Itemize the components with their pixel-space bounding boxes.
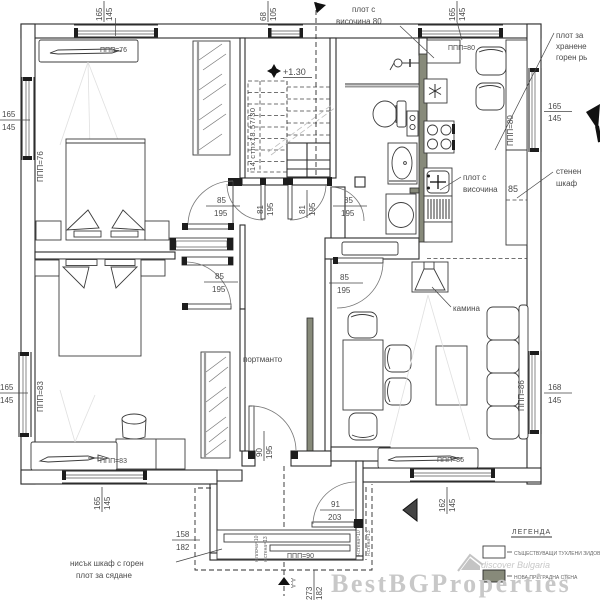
svg-text:ППП=83: ППП=83 xyxy=(36,381,45,412)
svg-text:н.стена=13: н.стена=13 xyxy=(263,536,269,562)
svg-text:145: 145 xyxy=(103,496,112,510)
svg-text:портманто: портманто xyxy=(243,355,283,364)
svg-text:горен рь: горен рь xyxy=(556,53,587,62)
svg-text:145: 145 xyxy=(548,114,562,123)
svg-text:ППП=90: ППП=90 xyxy=(287,553,314,560)
svg-text:ППП=86: ППП=86 xyxy=(437,457,464,464)
svg-text:®: ® xyxy=(563,573,569,582)
svg-text:височина 80: височина 80 xyxy=(336,17,382,26)
svg-text:ППП=86: ППП=86 xyxy=(517,380,526,411)
svg-text:195: 195 xyxy=(214,209,228,218)
svg-text:85: 85 xyxy=(215,272,224,281)
svg-text:145: 145 xyxy=(0,396,14,405)
svg-text:н.стена=13: н.стена=13 xyxy=(366,530,372,556)
svg-text:165: 165 xyxy=(548,102,562,111)
svg-text:85: 85 xyxy=(340,273,349,282)
svg-text:105: 105 xyxy=(269,7,278,21)
svg-text:182: 182 xyxy=(176,543,190,552)
svg-text:нисък шкаф с горен: нисък шкаф с горен xyxy=(70,559,144,568)
svg-text:ППП=76: ППП=76 xyxy=(100,47,127,54)
svg-text:плот за: плот за xyxy=(556,31,584,40)
svg-text:145: 145 xyxy=(105,7,114,21)
svg-text:A-A: A-A xyxy=(289,578,295,588)
svg-text:168: 168 xyxy=(548,383,562,392)
svg-text:височина: височина xyxy=(463,185,498,194)
svg-text:плот с: плот с xyxy=(352,5,375,14)
svg-text:85: 85 xyxy=(508,184,518,194)
svg-text:ППП=80: ППП=80 xyxy=(448,45,475,52)
svg-text:195: 195 xyxy=(308,202,317,216)
svg-text:BestBGProperties: BestBGProperties xyxy=(331,569,571,598)
svg-text:182: 182 xyxy=(315,586,324,600)
svg-text:камина: камина xyxy=(453,304,481,313)
svg-text:165: 165 xyxy=(448,7,457,21)
svg-text:145: 145 xyxy=(548,396,562,405)
svg-text:145: 145 xyxy=(2,123,16,132)
svg-text:162: 162 xyxy=(438,498,447,512)
svg-text:хранене: хранене xyxy=(556,42,587,51)
svg-text:203: 203 xyxy=(328,513,342,522)
svg-text:145: 145 xyxy=(448,498,457,512)
svg-text:195: 195 xyxy=(341,209,355,218)
svg-text:н.стена=10: н.стена=10 xyxy=(356,530,362,556)
svg-text:195: 195 xyxy=(337,286,351,295)
svg-text:шкаф: шкаф xyxy=(556,179,578,188)
svg-text:165: 165 xyxy=(93,496,102,510)
svg-text:195: 195 xyxy=(212,285,226,294)
svg-text:195: 195 xyxy=(266,202,275,216)
svg-text:165: 165 xyxy=(95,7,104,21)
svg-text:ЛЕГЕНДА: ЛЕГЕНДА xyxy=(512,529,551,536)
svg-text:165: 165 xyxy=(0,383,14,392)
svg-text:145: 145 xyxy=(458,7,467,21)
svg-text:195: 195 xyxy=(265,445,274,459)
svg-text:68: 68 xyxy=(259,12,268,21)
svg-text:плот за сядане: плот за сядане xyxy=(76,571,132,580)
svg-text:85: 85 xyxy=(217,196,226,205)
svg-text:273: 273 xyxy=(305,586,314,600)
svg-text:СЪЩЕСТВУВАЩИ ТУХЛЕНИ ЗИДОВЕ: СЪЩЕСТВУВАЩИ ТУХЛЕНИ ЗИДОВЕ xyxy=(514,551,600,557)
svg-text:90: 90 xyxy=(255,448,264,457)
svg-text:14 стпх18.57/30: 14 стпх18.57/30 xyxy=(248,107,257,171)
svg-text:плот с: плот с xyxy=(463,173,486,182)
svg-text:+1.30: +1.30 xyxy=(283,67,306,77)
svg-text:стенен: стенен xyxy=(556,167,581,176)
svg-text:85: 85 xyxy=(344,196,353,205)
svg-text:н.плоча=10: н.плоча=10 xyxy=(254,535,260,562)
svg-text:ППП=83: ППП=83 xyxy=(100,458,127,465)
svg-text:158: 158 xyxy=(176,530,190,539)
svg-text:ППП=76: ППП=76 xyxy=(36,151,45,182)
svg-text:81: 81 xyxy=(298,205,307,214)
svg-text:81: 81 xyxy=(256,205,265,214)
svg-text:165: 165 xyxy=(2,110,16,119)
svg-text:91: 91 xyxy=(331,500,340,509)
